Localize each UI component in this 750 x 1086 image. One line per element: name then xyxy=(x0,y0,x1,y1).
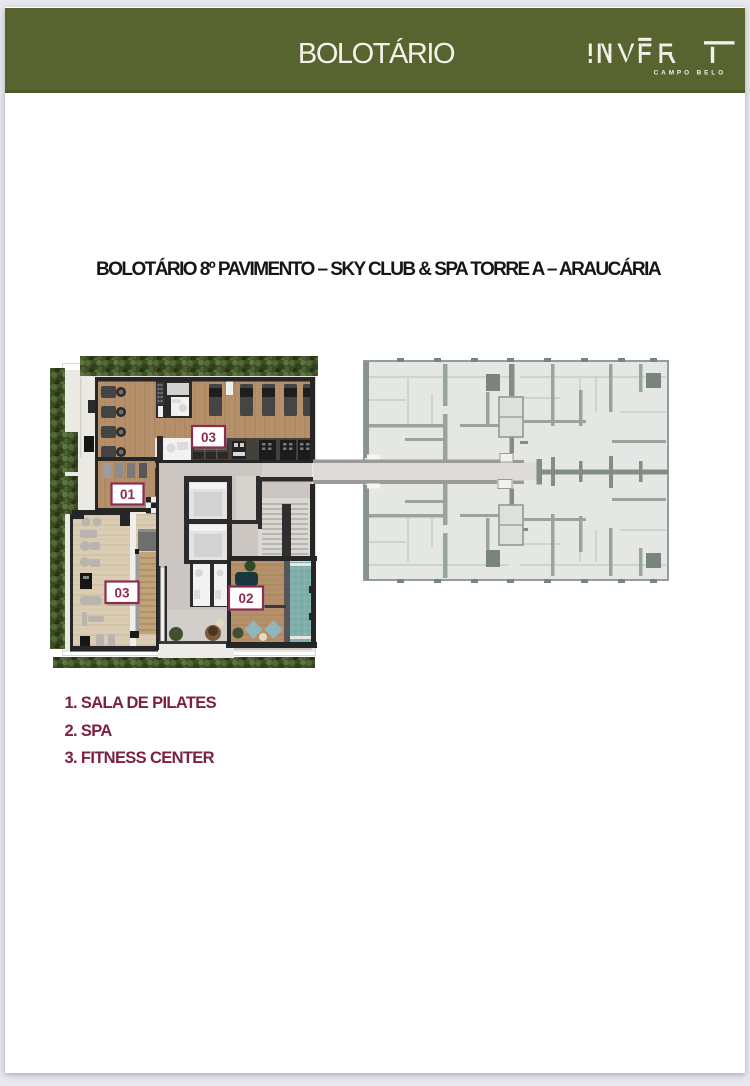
svg-text:CAMPO BELO: CAMPO BELO xyxy=(654,69,726,76)
svg-text:03: 03 xyxy=(114,586,130,601)
svg-text:03: 03 xyxy=(201,430,217,445)
svg-text:01: 01 xyxy=(120,487,136,502)
svg-text:02: 02 xyxy=(238,591,253,606)
